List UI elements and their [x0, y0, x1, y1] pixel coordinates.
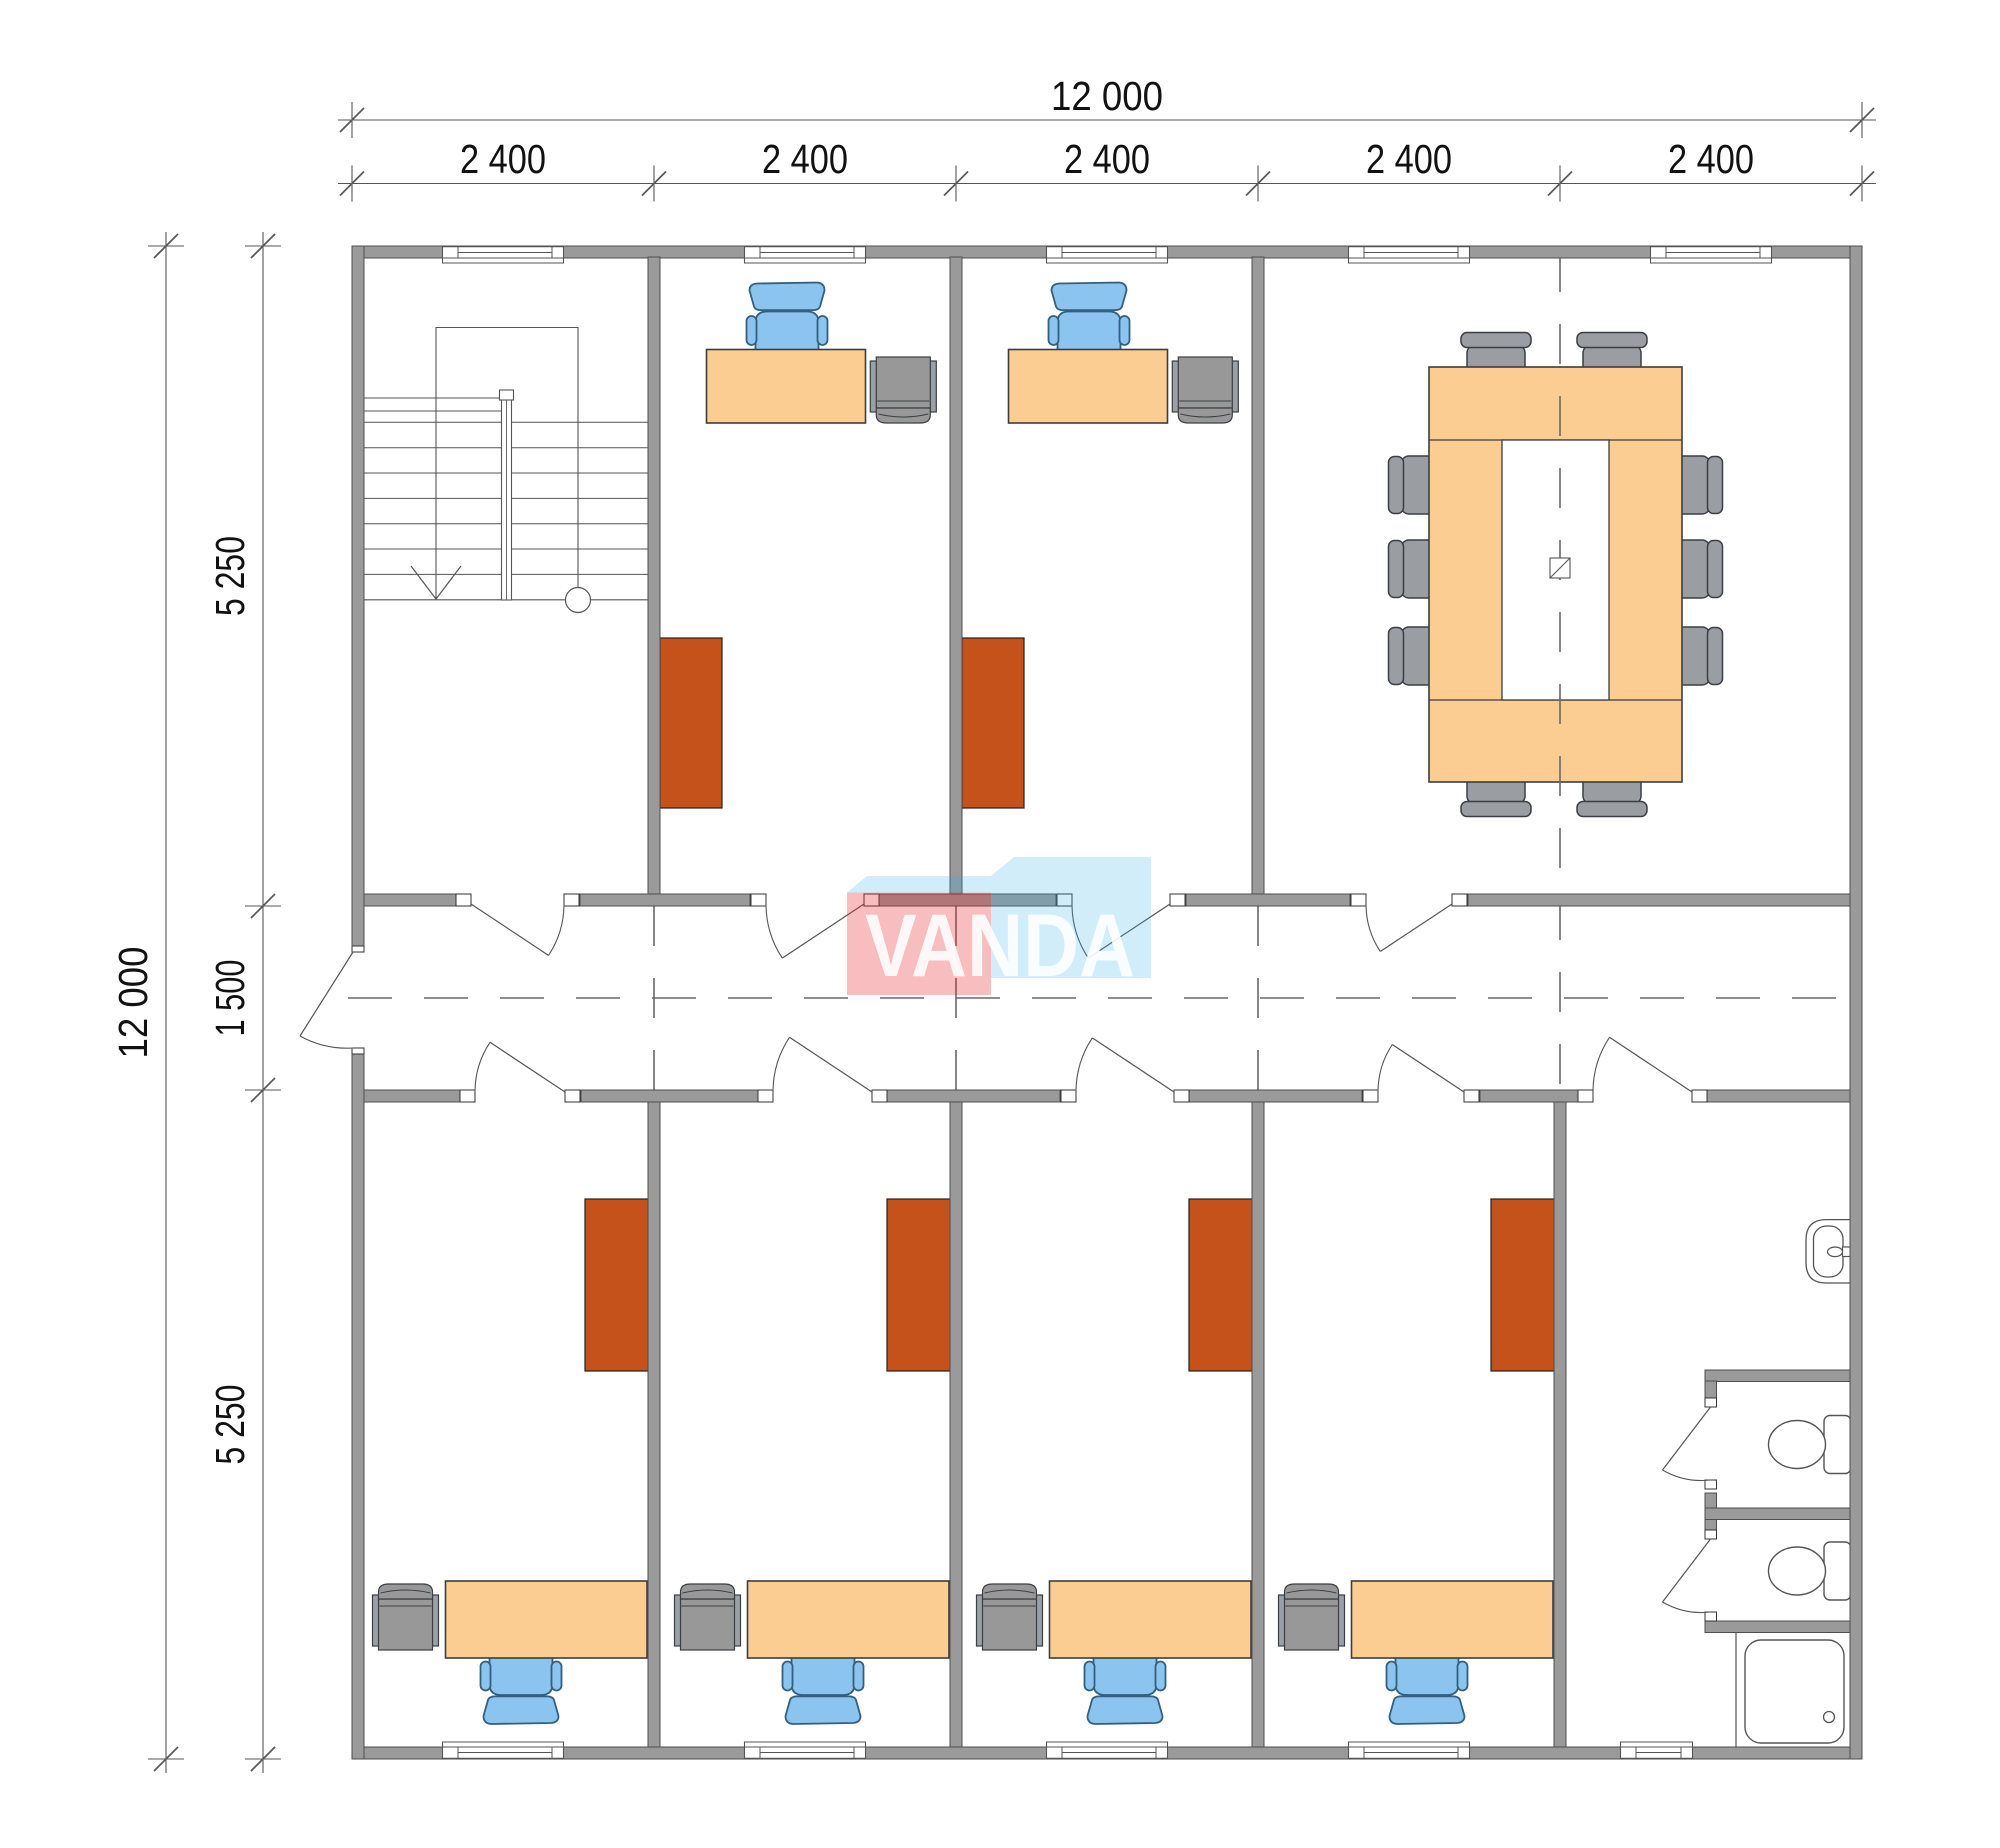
svg-text:12 000: 12 000 — [110, 947, 156, 1059]
svg-text:5 250: 5 250 — [207, 1385, 253, 1465]
svg-text:2 400: 2 400 — [1064, 136, 1150, 182]
svg-text:2 400: 2 400 — [1366, 136, 1452, 182]
svg-text:2 400: 2 400 — [1668, 136, 1754, 182]
svg-text:2 400: 2 400 — [762, 136, 848, 182]
svg-text:1 500: 1 500 — [207, 960, 253, 1037]
svg-text:5 250: 5 250 — [207, 536, 253, 616]
svg-text:12 000: 12 000 — [1051, 73, 1163, 119]
svg-text:VANDA: VANDA — [865, 895, 1135, 995]
svg-text:2 400: 2 400 — [460, 136, 546, 182]
